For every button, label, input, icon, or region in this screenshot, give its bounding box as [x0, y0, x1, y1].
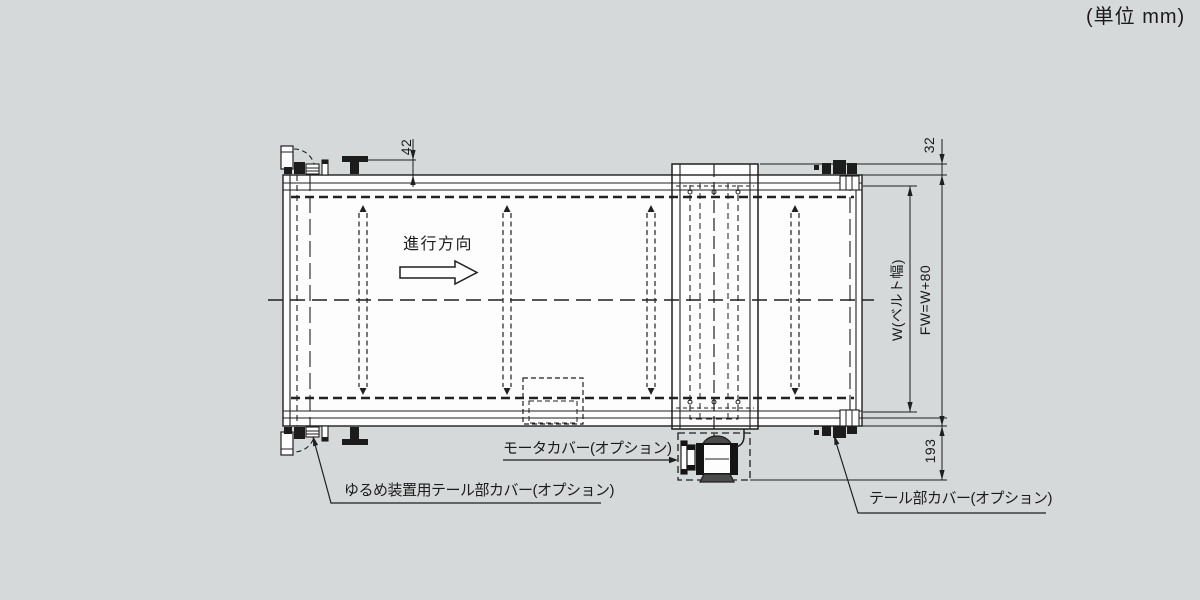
dim-42-label: 42 [398, 139, 414, 156]
tail-cover-label: テール部カバー(オプション) [869, 490, 1052, 507]
dim-32-label: 32 [921, 137, 937, 154]
dim-belt-width-label: W(ベルト幅) [889, 259, 905, 341]
motor-cover-label: モータカバー(オプション) [503, 440, 672, 457]
unit-note: (単位 mm) [1086, 6, 1185, 29]
conveyor-technical-drawing-page: (単位 mm) 進行方向 42 32 W(ベルト幅) FW=W+80 193 モ… [0, 0, 1200, 600]
conveyor-drawing-canvas [0, 0, 1200, 600]
loosening-tail-cover-label: ゆるめ装置用テール部カバー(オプション) [344, 482, 614, 499]
dim-frame-width-label: FW=W+80 [917, 265, 933, 335]
motor-icon [681, 429, 744, 482]
dim-193-label: 193 [922, 439, 938, 464]
direction-label: 進行方向 [403, 236, 473, 254]
